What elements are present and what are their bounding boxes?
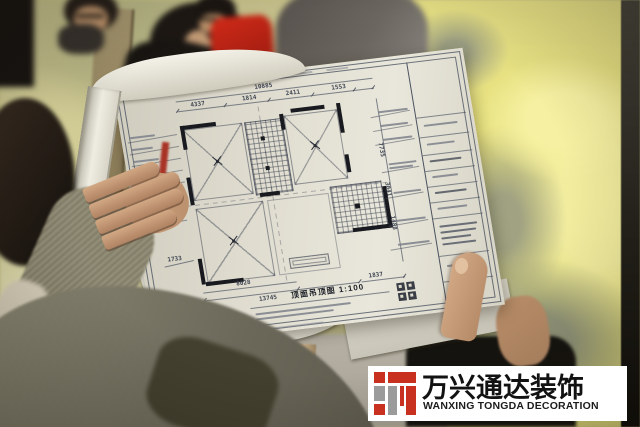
construction-site-photo: 10885 4337 1814 2411 1553: [0, 0, 640, 427]
dim-tick: [371, 85, 375, 90]
logo-block: [388, 386, 397, 415]
dark-corner-shape: [0, 0, 34, 87]
qr-stamp-icon: [396, 281, 417, 301]
logo-block: [374, 404, 385, 415]
logo-block: [406, 386, 416, 415]
note-text: [256, 309, 334, 320]
logo-block: [374, 386, 385, 401]
logo-block: [400, 386, 404, 406]
man-glasses-icon: [76, 14, 104, 18]
ceiling-lamp-icon: [210, 154, 224, 167]
company-name-english: WANXING TONGDA DECORATION: [423, 400, 599, 412]
ceiling-dot: [355, 203, 361, 209]
man-shoulder: [58, 24, 104, 54]
logo-block: [374, 372, 385, 383]
logo-block: [388, 372, 416, 383]
dim-label: 1488: [389, 215, 398, 230]
ceiling-dot: [265, 166, 270, 170]
company-logo: [372, 370, 418, 416]
dim-label: 3041: [383, 182, 392, 197]
dim-line: [177, 88, 374, 113]
ceiling-dot: [260, 136, 265, 140]
drawing-title: 顶面吊顶图 1:100: [252, 277, 403, 306]
ceiling-lamp-icon: [226, 234, 240, 247]
drawing-scale: 1:100: [338, 282, 365, 294]
watermark-banner: 万兴通达装饰 WANXING TONGDA DECORATION: [368, 366, 627, 421]
ceiling-lamp-icon: [308, 139, 322, 152]
dim-tick: [403, 274, 407, 279]
